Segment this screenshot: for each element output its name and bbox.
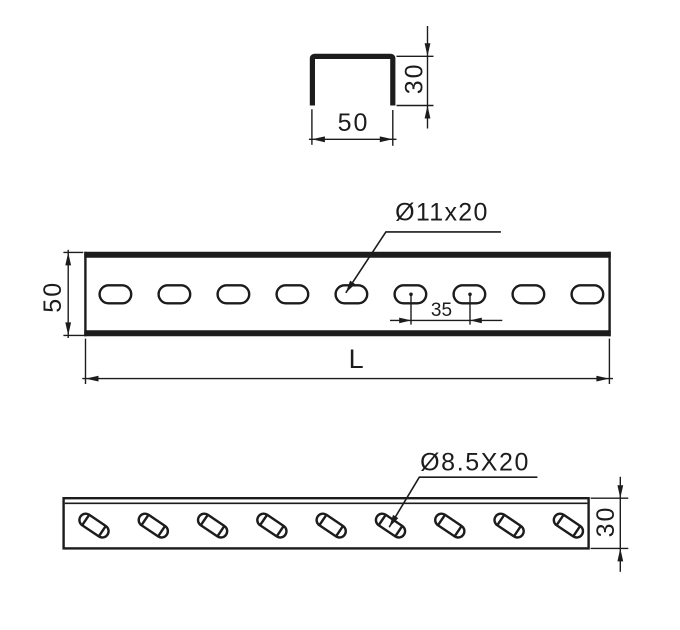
svg-text:35: 35 — [431, 300, 452, 321]
svg-text:Ø11x20: Ø11x20 — [395, 198, 489, 226]
svg-text:30: 30 — [592, 506, 620, 538]
svg-text:Ø8.5X20: Ø8.5X20 — [420, 449, 530, 477]
svg-text:L: L — [349, 344, 364, 374]
svg-text:50: 50 — [39, 281, 67, 313]
svg-text:50: 50 — [338, 109, 370, 137]
svg-text:30: 30 — [401, 62, 429, 94]
